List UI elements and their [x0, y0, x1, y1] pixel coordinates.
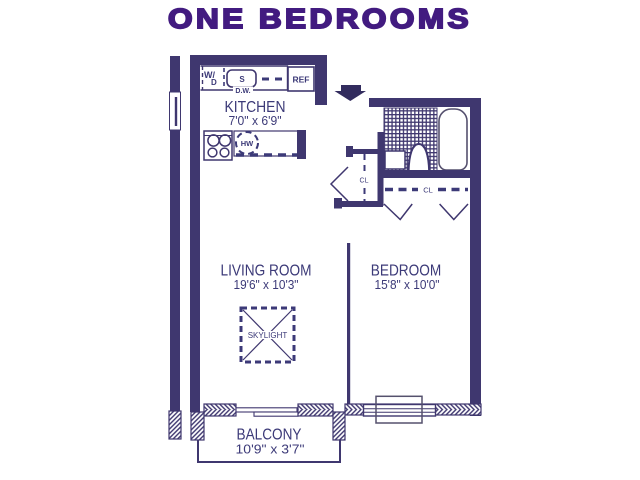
svg-text:ONE BEDROOMS: ONE BEDROOMS — [168, 3, 472, 34]
svg-text:15'8" x 10'0": 15'8" x 10'0" — [375, 277, 440, 292]
svg-text:CL: CL — [360, 178, 369, 185]
svg-text:D.W.: D.W. — [235, 88, 250, 95]
svg-text:CL: CL — [423, 186, 433, 195]
svg-text:10'9" x 3'7": 10'9" x 3'7" — [236, 442, 305, 457]
svg-text:19'6" x 10'3": 19'6" x 10'3" — [234, 277, 299, 292]
svg-text:REF: REF — [293, 75, 310, 85]
svg-text:SKYLIGHT: SKYLIGHT — [248, 331, 288, 340]
svg-text:S: S — [239, 75, 245, 84]
svg-text:7'0" x 6'9": 7'0" x 6'9" — [229, 113, 282, 128]
svg-text:D: D — [211, 78, 217, 87]
svg-text:HW: HW — [241, 139, 254, 148]
